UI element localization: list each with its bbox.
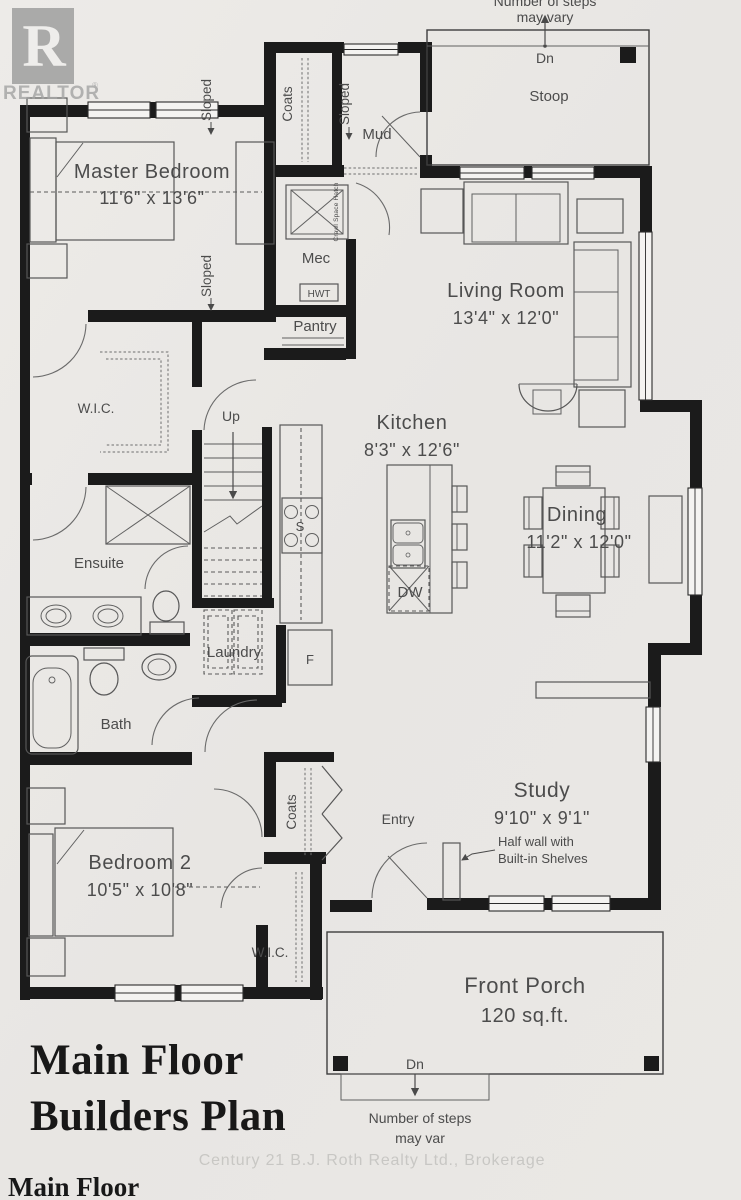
- realtor-logo-text: REALTOR: [3, 83, 100, 104]
- stoop-label: Stoop: [529, 88, 568, 105]
- dishwasher-label: DW: [398, 584, 424, 601]
- kitchen-name-label: Kitchen: [377, 412, 448, 434]
- porch-steps-note-line1: Number of steps: [369, 1110, 472, 1126]
- mud-label: Mud: [362, 126, 391, 143]
- ensuite-label: Ensuite: [74, 555, 124, 572]
- bedroom2-wic-label: W.I.C.: [252, 945, 289, 960]
- plan-title-line1: Main Floor: [30, 1037, 244, 1084]
- dining-dims-label: 11'2" x 12'0": [526, 532, 631, 552]
- living-room-name-label: Living Room: [447, 280, 565, 302]
- study-name-label: Study: [514, 779, 571, 802]
- living-right-window: [639, 232, 652, 400]
- master-bedroom-dims-label: 11'6" x 13'6": [99, 188, 204, 208]
- registered-trademark-icon: ®: [92, 81, 98, 90]
- half-wall-note-line1: Half wall with: [498, 834, 574, 849]
- bedroom2-dims-label: 10'5" x 10'8": [87, 880, 194, 900]
- sloped-note-top: Sloped: [199, 79, 214, 121]
- mec-label: Mec: [302, 250, 331, 267]
- floor-plan: Stoop Dn Number of steps may vary Master…: [0, 0, 741, 1200]
- sloped-note-bottom: Sloped: [199, 255, 214, 297]
- bedroom2-name-label: Bedroom 2: [88, 852, 191, 874]
- mud-window: [344, 44, 398, 55]
- crawl-space-hatch-label: Crawl Space Hatch: [333, 182, 340, 241]
- entry-label: Entry: [382, 811, 415, 827]
- living-room-dims-label: 13'4" x 12'0": [453, 308, 560, 328]
- stove-label: S: [296, 519, 305, 534]
- master-bedroom-name-label: Master Bedroom: [74, 161, 230, 183]
- stairs-up-label: Up: [222, 408, 240, 424]
- stoop-steps-note-line1: Number of steps: [494, 0, 597, 9]
- porch-post-left: [333, 1056, 348, 1071]
- sloped-note-mud: Sloped: [337, 83, 352, 125]
- porch-post-right: [644, 1056, 659, 1071]
- half-wall-note-line2: Built-in Shelves: [498, 851, 588, 866]
- fridge-label: F: [306, 652, 314, 667]
- realtor-logo-letter: R: [22, 13, 66, 79]
- pantry-label: Pantry: [293, 318, 337, 335]
- front-porch-area-label: 120 sq.ft.: [481, 1005, 569, 1027]
- plan-footer-label: Main Floor: [8, 1172, 139, 1200]
- brokerage-watermark: Century 21 B.J. Roth Realty Ltd., Broker…: [199, 1152, 546, 1169]
- hwt-label: HWT: [308, 289, 331, 300]
- laundry-label: Laundry: [207, 644, 262, 661]
- bath-label: Bath: [101, 716, 132, 733]
- study-right-window: [646, 707, 660, 762]
- coats-upper-label: Coats: [280, 86, 295, 122]
- stoop-dn-label: Dn: [536, 50, 554, 66]
- kitchen-dims-label: 8'3" x 12'6": [364, 440, 460, 460]
- dining-name-label: Dining: [547, 504, 607, 526]
- study-dims-label: 9'10" x 9'1": [494, 808, 590, 828]
- coats-lower-label: Coats: [284, 794, 299, 830]
- dining-window: [688, 488, 702, 595]
- plan-title-line2: Builders Plan: [30, 1093, 286, 1140]
- porch-dn-label: Dn: [406, 1056, 424, 1072]
- master-wic-label: W.I.C.: [78, 401, 115, 416]
- stoop-post: [620, 47, 636, 63]
- stoop-steps-note-line2: may vary: [517, 9, 574, 25]
- porch-steps-note-line2: may var: [395, 1130, 445, 1146]
- front-porch-name-label: Front Porch: [464, 973, 586, 998]
